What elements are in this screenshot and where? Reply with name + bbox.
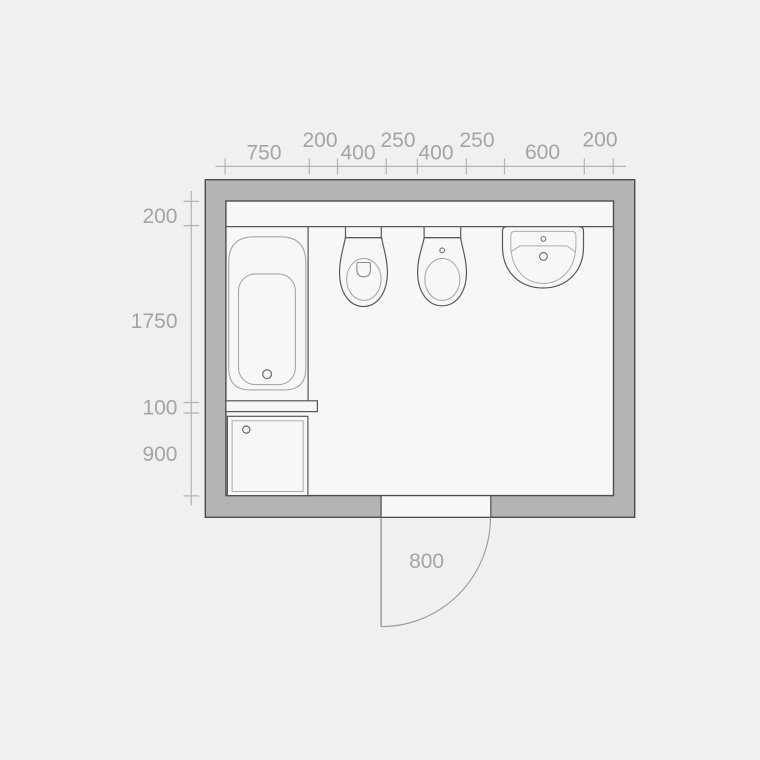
- svg-text:400: 400: [418, 141, 453, 164]
- svg-text:800: 800: [409, 550, 444, 573]
- svg-text:200: 200: [302, 129, 337, 152]
- svg-text:250: 250: [380, 129, 415, 152]
- svg-text:900: 900: [142, 443, 177, 466]
- svg-text:600: 600: [525, 141, 560, 164]
- svg-text:200: 200: [142, 205, 177, 228]
- svg-text:200: 200: [582, 129, 617, 152]
- svg-text:250: 250: [459, 129, 494, 152]
- svg-text:750: 750: [246, 141, 281, 164]
- svg-text:400: 400: [340, 141, 375, 164]
- svg-text:1750: 1750: [131, 310, 178, 333]
- svg-text:100: 100: [142, 396, 177, 419]
